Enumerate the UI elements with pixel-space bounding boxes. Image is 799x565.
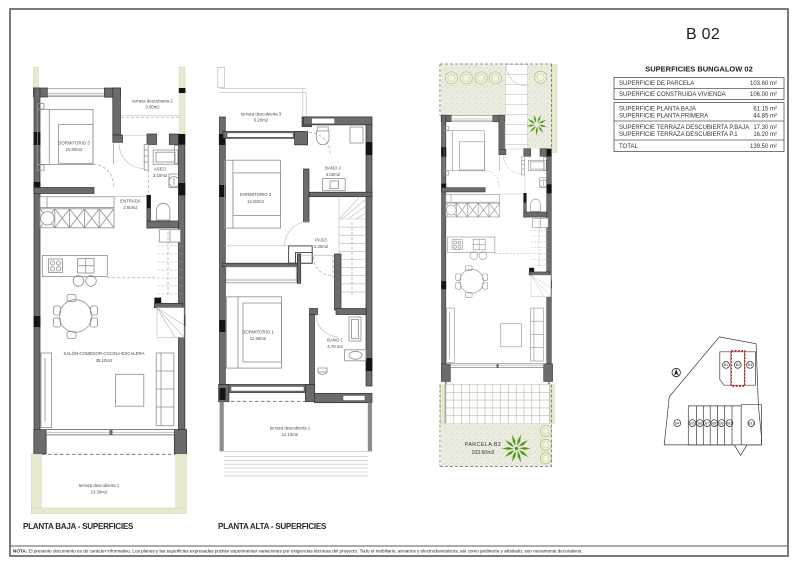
svg-text:10.00m2: 10.00m2: [66, 147, 83, 152]
svg-text:3.00m2: 3.00m2: [145, 105, 160, 110]
svg-text:B3: B3: [748, 363, 752, 367]
svg-text:103.60m2: 103.60m2: [471, 450, 494, 456]
svg-text:B11: B11: [748, 421, 754, 425]
svg-text:103.60 m²: 103.60 m²: [750, 81, 777, 87]
svg-text:B5: B5: [690, 421, 694, 425]
svg-text:TOTAL: TOTAL: [619, 144, 638, 150]
svg-text:SUPERFICIE CONSTRUIDA VIVIENDA: SUPERFICIE CONSTRUIDA VIVIENDA: [619, 92, 726, 98]
svg-text:B8: B8: [712, 421, 716, 425]
svg-text:16.20 m²: 16.20 m²: [753, 132, 777, 138]
svg-text:13.30m2: 13.30m2: [91, 490, 108, 495]
svg-text:5.20m2: 5.20m2: [254, 118, 269, 123]
svg-text:terraza descubierta 2: terraza descubierta 2: [132, 99, 173, 104]
svg-text:BAÑO 2: BAÑO 2: [325, 166, 341, 171]
svg-text:B 02: B 02: [686, 26, 720, 43]
svg-text:B4: B4: [675, 421, 679, 425]
svg-text:DORMITORIO 2: DORMITORIO 2: [240, 192, 272, 197]
svg-text:139.50 m²: 139.50 m²: [750, 144, 777, 150]
svg-text:NOTA: El presente documento es: NOTA: El presente documento es de caráct…: [13, 549, 582, 554]
svg-text:B2: B2: [736, 363, 740, 367]
svg-text:2.60m2: 2.60m2: [123, 205, 138, 210]
svg-text:3.10m2: 3.10m2: [153, 173, 168, 178]
svg-text:SUPERFICIE DE PARCELA: SUPERFICIE DE PARCELA: [619, 81, 694, 87]
svg-text:PASO: PASO: [315, 238, 327, 243]
svg-text:4.70 m2: 4.70 m2: [327, 344, 343, 349]
svg-text:ENTRADA: ENTRADA: [120, 199, 141, 204]
svg-text:SALÓN-COMEDOR-COCINA-ESCALERA: SALÓN-COMEDOR-COCINA-ESCALERA: [64, 351, 145, 356]
svg-text:PLANTA ALTA - SUPERFICIES: PLANTA ALTA - SUPERFICIES: [218, 522, 327, 531]
svg-text:B7: B7: [705, 421, 709, 425]
svg-text:17.30 m²: 17.30 m²: [753, 125, 777, 131]
svg-text:DORMITORIO 1: DORMITORIO 1: [242, 330, 274, 335]
svg-text:SUPERFICIE TERRAZA DESCUBIERTA: SUPERFICIE TERRAZA DESCUBIERTA P.BAJA: [619, 125, 749, 131]
svg-text:61.15 m²: 61.15 m²: [753, 107, 777, 113]
svg-text:terraza descubierta 1: terraza descubierta 1: [79, 483, 120, 488]
svg-text:11.60m2: 11.60m2: [250, 336, 267, 341]
svg-text:SUPERFICIE PLANTA PRIMERA: SUPERFICIE PLANTA PRIMERA: [619, 114, 708, 120]
svg-text:ASEO: ASEO: [154, 167, 167, 172]
svg-text:SUPERFICIES BUNGALOW 02: SUPERFICIES BUNGALOW 02: [645, 65, 753, 74]
svg-text:B6: B6: [698, 421, 702, 425]
svg-text:SUPERFICIE TERRAZA DESCUBIERTA: SUPERFICIE TERRAZA DESCUBIERTA P.1: [619, 132, 738, 138]
svg-text:2.30m2: 2.30m2: [314, 244, 329, 249]
svg-text:terraza descubierta 1: terraza descubierta 1: [270, 426, 311, 431]
svg-text:PARCELA B2: PARCELA B2: [465, 442, 502, 448]
svg-text:11.10m2: 11.10m2: [282, 432, 299, 437]
svg-text:terraza descubierta 3: terraza descubierta 3: [241, 112, 282, 117]
svg-text:SUPERFICIE PLANTA BAJA: SUPERFICIE PLANTA BAJA: [619, 107, 696, 113]
svg-text:DORMITORIO 3: DORMITORIO 3: [58, 141, 90, 146]
svg-text:BAÑO 1: BAÑO 1: [327, 338, 343, 343]
svg-text:4.00m2: 4.00m2: [326, 172, 341, 177]
svg-text:B1: B1: [724, 363, 728, 367]
svg-text:PLANTA BAJA - SUPERFICIES: PLANTA BAJA - SUPERFICIES: [23, 522, 134, 531]
svg-text:44.85 m²: 44.85 m²: [753, 114, 777, 120]
svg-text:106.00 m²: 106.00 m²: [750, 92, 777, 98]
svg-text:B9: B9: [719, 421, 723, 425]
svg-text:12.00m2: 12.00m2: [247, 199, 264, 204]
svg-text:35.10m2: 35.10m2: [96, 358, 113, 363]
svg-text:B10: B10: [726, 421, 732, 425]
